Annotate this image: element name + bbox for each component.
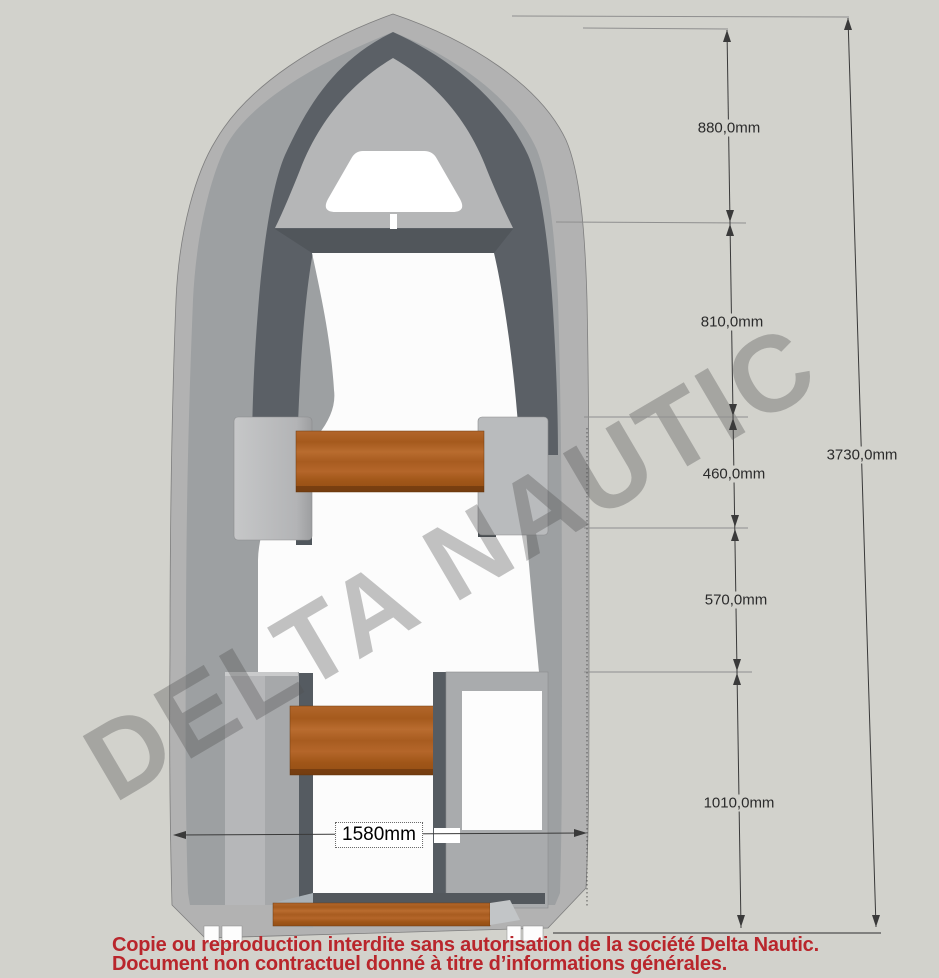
- mid-seat-support-right: [478, 417, 548, 535]
- console-panel: [462, 691, 542, 830]
- bulkhead: [275, 229, 513, 253]
- dim-label-1010: 1010,0mm: [701, 795, 778, 812]
- port-bench-top-edge: [225, 672, 298, 676]
- mid-seat-edge: [296, 486, 484, 492]
- copyright-line-2: Document non contractuel donné à titre d…: [112, 955, 819, 974]
- dim-label-570: 570,0mm: [702, 592, 771, 609]
- dim-label-810: 810,0mm: [698, 314, 767, 331]
- dim-label-overall-length: 3730,0mm: [824, 447, 901, 464]
- console-step: [434, 828, 460, 843]
- aft-seat-edge: [290, 769, 437, 775]
- port-bench: [225, 672, 267, 905]
- boat-top-view: [0, 0, 939, 978]
- aft-wooden-seat: [290, 706, 437, 775]
- dim-label-beam: 1580mm: [335, 822, 423, 848]
- dim-label-880: 880,0mm: [695, 120, 764, 137]
- copyright-notice: Copie ou reproduction interdite sans aut…: [112, 936, 819, 974]
- dim-label-460: 460,0mm: [700, 466, 769, 483]
- boat-technical-drawing: DELTA NAUTIC: [0, 0, 939, 978]
- mid-wooden-seat: [296, 431, 484, 492]
- console-left-edge: [433, 672, 447, 908]
- transom-plank: [273, 903, 490, 926]
